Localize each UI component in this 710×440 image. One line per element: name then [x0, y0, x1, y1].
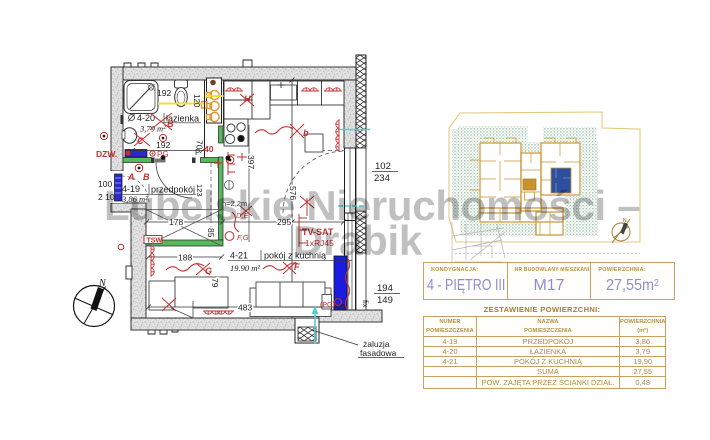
- svg-text:40: 40: [204, 144, 214, 154]
- svg-text:fasadowa: fasadowa: [360, 348, 397, 358]
- svg-text:79: 79: [210, 278, 220, 288]
- svg-text:b: b: [303, 128, 309, 138]
- svg-text:C: C: [137, 136, 144, 146]
- svg-text:(PG): (PG): [320, 302, 335, 309]
- svg-text:194: 194: [377, 283, 393, 294]
- svg-text:F,G: F,G: [237, 233, 249, 242]
- svg-text:120: 120: [192, 94, 201, 108]
- svg-text:B: B: [167, 119, 174, 129]
- svg-text:19.90 m²: 19.90 m²: [230, 263, 260, 273]
- svg-text:P: P: [195, 148, 200, 157]
- svg-text:B: B: [143, 172, 150, 182]
- svg-text:DZW.: DZW.: [96, 149, 117, 159]
- svg-text:85: 85: [206, 228, 216, 238]
- svg-text:H: H: [244, 94, 251, 104]
- svg-text:4-21: 4-21: [230, 251, 248, 261]
- svg-text:188: 188: [178, 253, 192, 263]
- svg-text:G: G: [205, 266, 212, 276]
- svg-text:fix: fix: [361, 300, 370, 308]
- svg-text:A: A: [127, 172, 135, 182]
- svg-text:483: 483: [238, 303, 252, 313]
- svg-text:397: 397: [246, 155, 256, 169]
- svg-text:TSW: TSW: [147, 238, 163, 245]
- svg-text:N: N: [98, 278, 107, 289]
- svg-text:102: 102: [375, 161, 391, 172]
- svg-text:149: 149: [377, 295, 393, 306]
- svg-text:192: 192: [157, 88, 171, 98]
